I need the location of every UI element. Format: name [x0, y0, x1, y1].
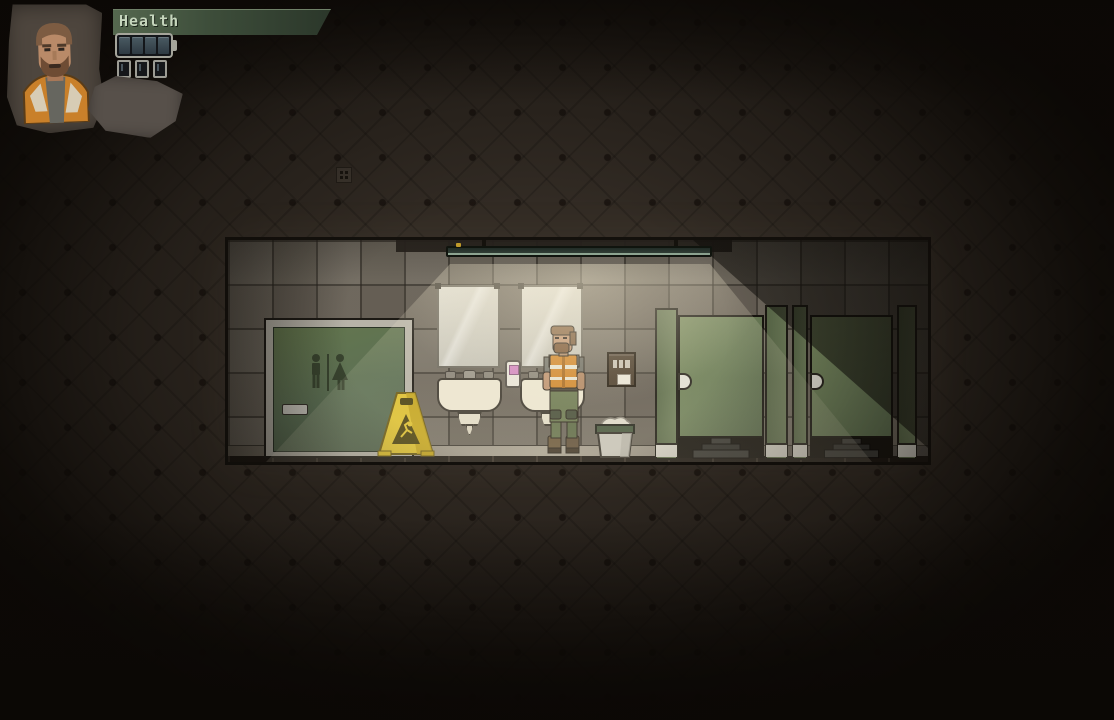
left-shade — [228, 240, 928, 462]
fluorescent-tube — [446, 246, 712, 257]
player-portrait — [13, 10, 97, 125]
portrait-panel — [4, 1, 106, 134]
hud-paper-patch — [86, 75, 183, 140]
hud-mini-slots — [117, 60, 167, 78]
mini-slot — [135, 60, 149, 78]
health-battery — [115, 33, 173, 58]
game-screen: Health — [0, 0, 1114, 720]
mini-slot — [117, 60, 131, 78]
lamp-indicator-dot — [456, 243, 461, 247]
health-segment — [158, 37, 169, 54]
mini-slot — [153, 60, 167, 78]
health-bar: Health — [113, 9, 331, 35]
wall-vent — [336, 167, 352, 183]
health-segment — [145, 37, 156, 54]
hud: Health — [0, 0, 360, 150]
ceiling-light — [446, 240, 712, 264]
health-segment — [132, 37, 143, 54]
restroom-room — [228, 240, 928, 462]
health-label: Health — [113, 9, 331, 30]
health-segment — [119, 37, 130, 54]
